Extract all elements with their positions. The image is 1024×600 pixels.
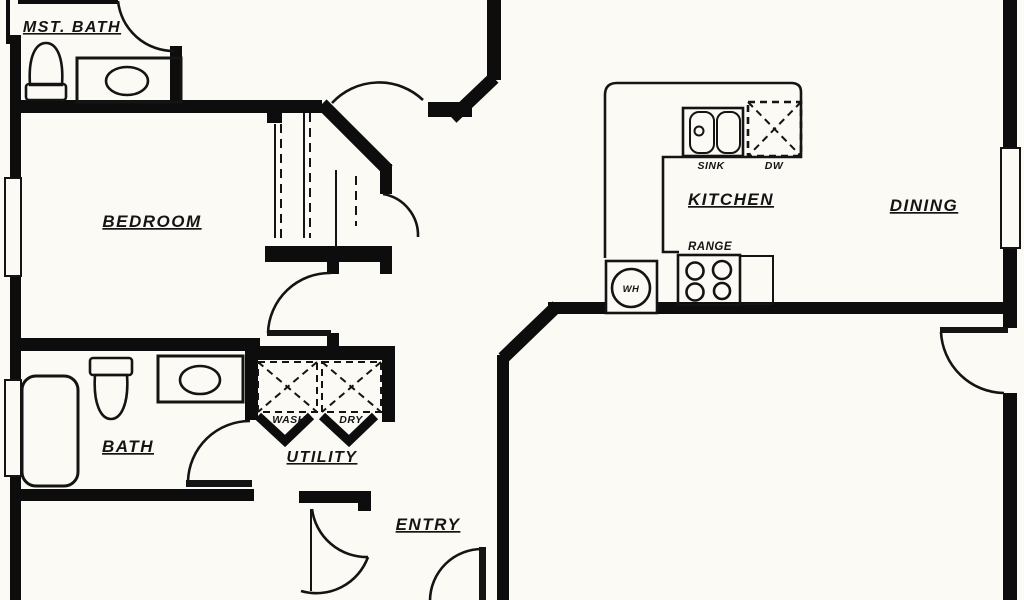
bath-sink-oval xyxy=(180,366,220,394)
mst-bath-door-arc xyxy=(118,1,175,51)
wall-right-upper xyxy=(1003,0,1017,150)
window-bath xyxy=(5,380,21,476)
utility-area xyxy=(245,346,395,441)
wall-entry-left-cap xyxy=(358,491,371,511)
wall-utility-top xyxy=(245,346,395,360)
wall-closet-opening-nub xyxy=(267,112,282,123)
wall-bottom-left xyxy=(18,489,254,501)
range-burner-1 xyxy=(687,263,704,280)
room-label-utility: UTILITY xyxy=(287,449,358,466)
wall-entry-living xyxy=(497,355,509,600)
exterior-walls xyxy=(6,0,1017,600)
fixture-label-range: RANGE xyxy=(688,241,732,253)
window-dining xyxy=(1001,148,1020,248)
room-label-entry: ENTRY xyxy=(396,515,461,534)
front-door-leaf xyxy=(479,547,486,600)
bath-fixtures xyxy=(22,356,243,486)
bath-toilet-tank xyxy=(90,358,132,375)
bath-door-arc xyxy=(188,421,250,481)
wall-utility-right xyxy=(382,358,395,422)
wall-hall-door-jamb xyxy=(428,102,472,117)
wall-closet-bottom xyxy=(265,246,392,262)
room-label-dining: DINING xyxy=(890,196,959,215)
counter-right-of-range xyxy=(740,256,773,304)
bath-toilet-bowl xyxy=(95,375,128,419)
window-bedroom xyxy=(5,178,21,276)
wall-left-middle xyxy=(10,276,21,382)
fixture-label-dw: DW xyxy=(765,160,784,172)
sink-basin-right xyxy=(717,112,740,153)
mst-toilet-tank xyxy=(26,84,66,100)
entry-closet-door-arc-1 xyxy=(312,509,368,557)
dining-side-door-leaf xyxy=(940,327,1008,333)
bath-door-leaf xyxy=(186,480,252,487)
floor-plan: MST. BATH BEDROOM KITCHEN DINING BATH UT… xyxy=(0,0,1024,600)
wall-bath-top xyxy=(10,338,260,351)
bedroom-door-arc xyxy=(268,273,331,333)
doors xyxy=(118,1,1008,600)
wall-top-mst-bath xyxy=(18,0,118,4)
mst-bath-fixtures xyxy=(26,43,181,102)
mst-toilet-bowl xyxy=(30,43,63,85)
wall-right-middle xyxy=(1003,246,1017,328)
dining-side-door-arc xyxy=(941,332,1004,393)
hall-closet-door-arc xyxy=(383,194,418,237)
wall-closet-diagonal xyxy=(322,104,388,170)
interior-walls xyxy=(10,0,1010,600)
wall-top-center xyxy=(487,0,501,80)
wall-left-top-thin xyxy=(6,0,10,44)
mst-sink-oval xyxy=(106,67,148,95)
hall-door-arc xyxy=(332,82,423,103)
fixture-label-sink: SINK xyxy=(697,160,725,172)
fixture-label-wh: WH xyxy=(623,284,640,295)
room-label-kitchen: KITCHEN xyxy=(688,190,774,209)
range-burner-2 xyxy=(713,261,731,279)
room-label-bath: BATH xyxy=(102,437,154,456)
front-door-arc xyxy=(430,549,482,600)
sink-basin-left xyxy=(690,112,714,153)
fixture-label-dry: DRY xyxy=(339,414,363,426)
bathtub xyxy=(22,376,78,486)
wall-right-lower xyxy=(1003,393,1017,600)
bedroom-door-leaf xyxy=(267,330,331,336)
wall-utility-left xyxy=(245,358,258,420)
sink-drain xyxy=(695,127,704,136)
range-burner-3 xyxy=(687,284,704,301)
range-burner-4 xyxy=(714,283,730,299)
room-label-mst-bath: MST. BATH xyxy=(23,19,121,36)
wall-hall-closet-jamb-top xyxy=(380,164,392,194)
labels: MST. BATH BEDROOM KITCHEN DINING BATH UT… xyxy=(23,19,958,534)
room-label-bedroom: BEDROOM xyxy=(102,212,201,231)
fixture-label-wash: WASH xyxy=(272,414,306,426)
